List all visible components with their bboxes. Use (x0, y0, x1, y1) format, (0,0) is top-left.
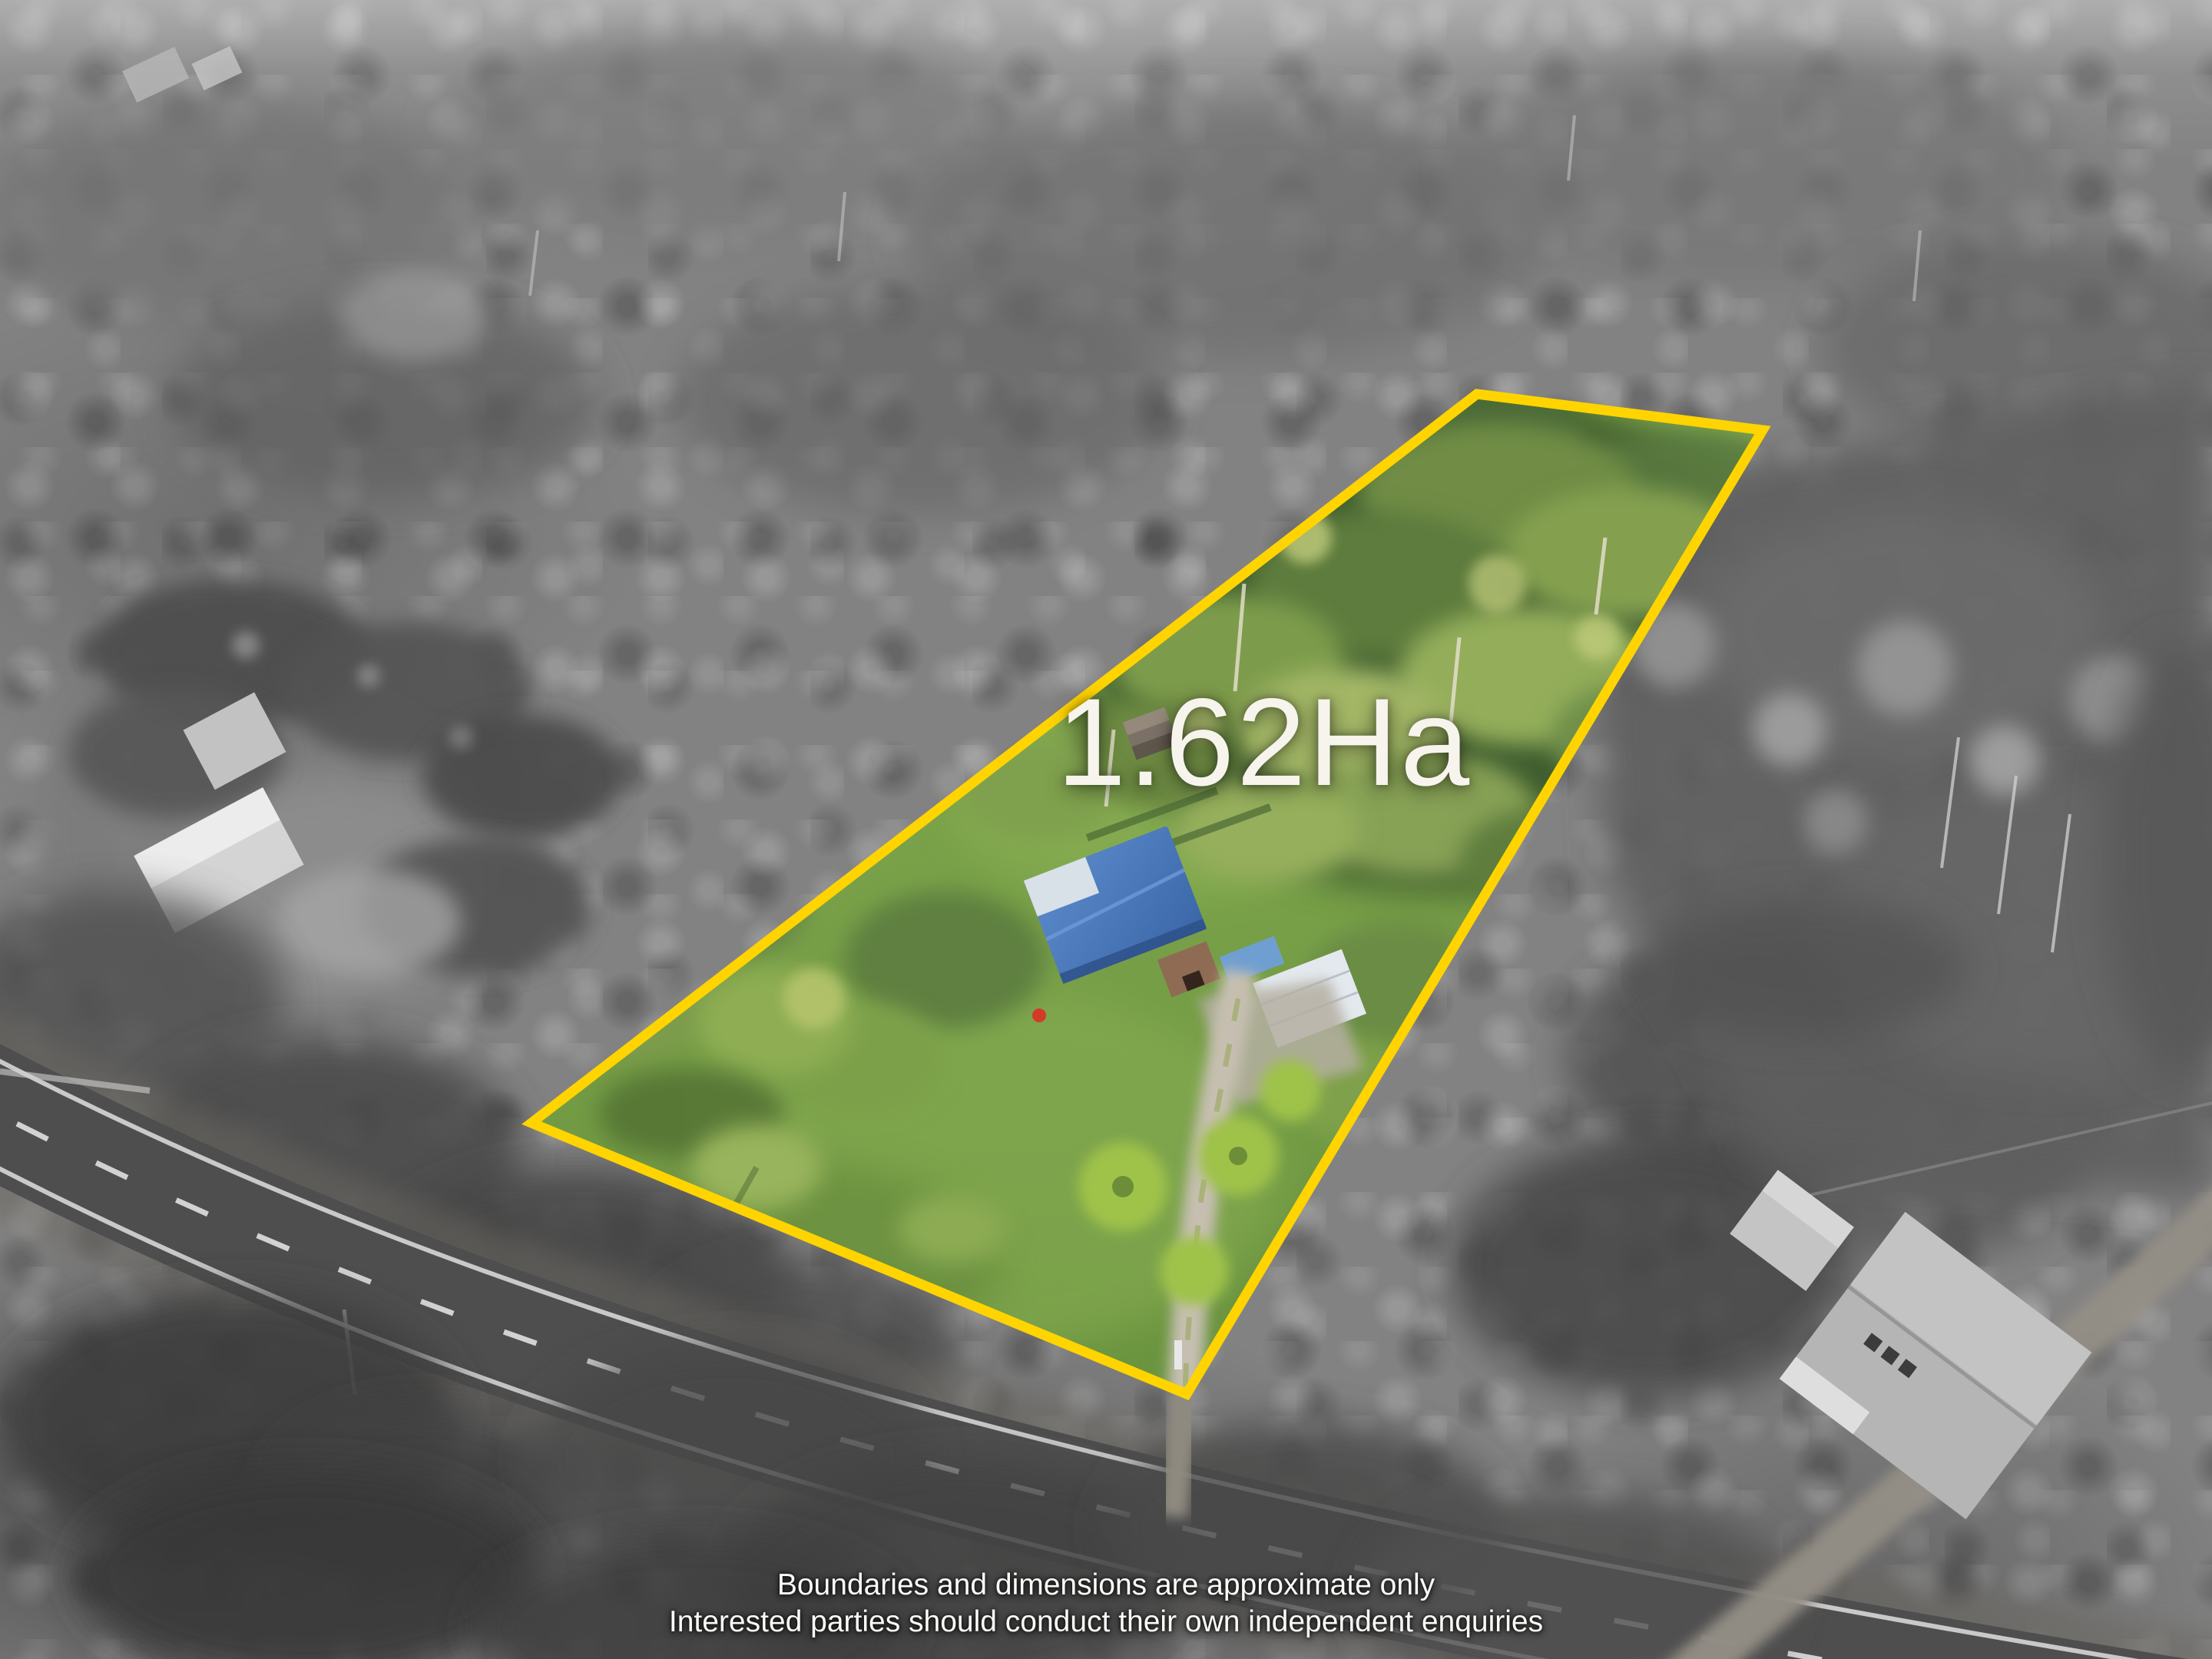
palm-highlight (357, 664, 380, 687)
paddock-tree (1753, 693, 1826, 767)
tree-blob (653, 853, 806, 960)
tree-blob (899, 1194, 1006, 1263)
canopy-highlight (1469, 555, 1527, 613)
canopy-highlight (1575, 614, 1621, 661)
concrete-pad (276, 868, 461, 975)
paddock-shadow (1644, 899, 1966, 1037)
palm-tree (1160, 1237, 1229, 1306)
driveway-crossover (1173, 1394, 1184, 1517)
paddock-tree (1803, 790, 1868, 854)
paddock-tree (1857, 621, 1952, 716)
canopy-highlight (783, 968, 845, 1029)
palm-centre (1112, 1176, 1134, 1197)
shade-patch (676, 284, 1167, 515)
gum-trunk (530, 230, 538, 296)
far-roofs (122, 46, 242, 103)
palm-highlight (232, 631, 260, 659)
area-label: 1.62Ha (1057, 680, 1472, 805)
aerial-photo-scene: 1.62Ha Boundaries and dimensions are app… (0, 0, 2212, 1659)
palm-highlight (449, 725, 473, 750)
pond (342, 269, 488, 361)
disclaimer: Boundaries and dimensions are approximat… (0, 1567, 2212, 1640)
palm-tree (1260, 1060, 1321, 1121)
disclaimer-line1: Boundaries and dimensions are approximat… (0, 1567, 2212, 1604)
paddock-tree (1969, 725, 2040, 796)
disclaimer-line2: Interested parties should conduct their … (0, 1604, 2212, 1641)
mailbox-post (1174, 1340, 1182, 1369)
scene-drawing (0, 0, 2212, 1659)
red-marker-object (1032, 1008, 1046, 1022)
palm-centre (1229, 1147, 1247, 1165)
